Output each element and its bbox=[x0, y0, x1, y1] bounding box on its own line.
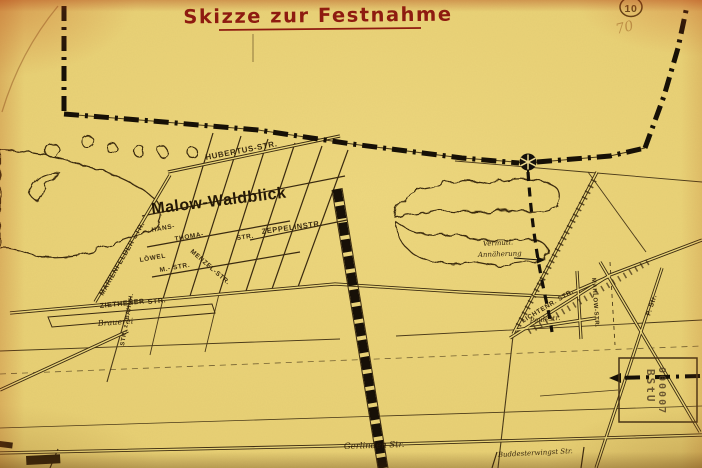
map-drawing: Skizze zur Festnahme 10 70 Malow-Waldbli… bbox=[0, 0, 702, 468]
paper-grain bbox=[0, 0, 702, 468]
approach-note-line2: Annäherung bbox=[477, 249, 523, 259]
stamp-number: 000007 bbox=[656, 367, 667, 415]
street-label-gerlinden: Gerlinden Str. bbox=[344, 440, 405, 452]
approach-note-line1: Vermutl. bbox=[483, 238, 514, 248]
scanned-arrest-sketch-map: Skizze zur Festnahme 10 70 Malow-Waldbli… bbox=[0, 0, 702, 468]
page-number: 10 bbox=[625, 3, 638, 15]
page-title: Skizze zur Festnahme bbox=[183, 3, 452, 29]
stamp-org: BStU bbox=[644, 369, 657, 404]
